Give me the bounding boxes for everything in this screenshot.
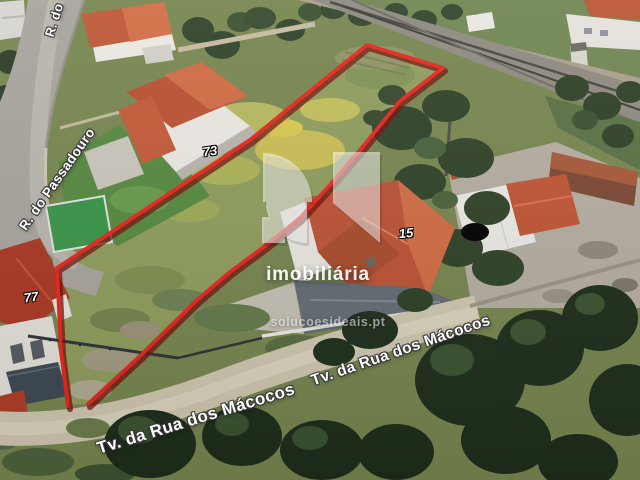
aerial-photo-viewport: R. do R. do Passadouro Tv. da Rua dos Má… xyxy=(0,0,640,480)
light-overlay xyxy=(0,0,640,480)
satellite-scene xyxy=(0,0,640,480)
